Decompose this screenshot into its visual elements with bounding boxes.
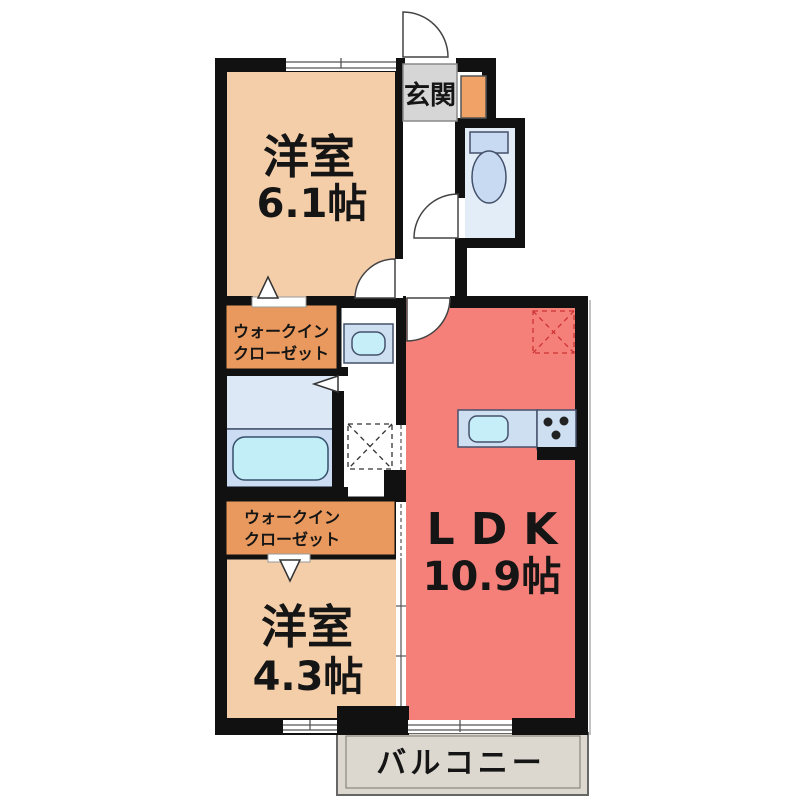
bedroom-bottom-ldk-sliding-door <box>396 502 406 706</box>
bedroom-top-area: 6.1帖 <box>257 181 368 227</box>
washroom-ldk-sliding-door <box>396 425 406 470</box>
closet-bottom-label-line1: ウォークイン <box>244 508 340 527</box>
toilet-icon <box>470 132 508 203</box>
bedroom-top-name: 洋室 <box>263 130 355 184</box>
balcony-label: バルコニー <box>376 746 545 781</box>
bathtub-icon <box>233 437 328 480</box>
bedroom-bottom-area: 4.3帖 <box>253 654 364 700</box>
shoe-cabinet <box>461 76 486 118</box>
kitchen-counter-icon <box>458 410 576 449</box>
ldk-name: LDK <box>427 504 574 555</box>
vanity-sink-icon <box>344 324 393 363</box>
window-bedroom-bottom <box>283 720 337 733</box>
floorplan-drawing: 玄関 洋室 6.1帖 ウォークイン クローゼット ウォークイン クローゼット 洋… <box>0 0 800 800</box>
kitchen-end-wall <box>537 447 588 460</box>
washing-machine-space <box>348 424 392 469</box>
window-ldk-balcony <box>408 720 512 733</box>
bedroom-bottom-name: 洋室 <box>261 600 353 654</box>
ldk-area: 10.9帖 <box>423 554 562 600</box>
toilet-door-arc <box>414 194 458 238</box>
window-bedroom-top <box>286 58 396 71</box>
closet-top-label-line2: クローゼット <box>233 344 329 363</box>
bedroom-top-door-opening <box>395 259 403 298</box>
entrance-label: 玄関 <box>404 80 456 111</box>
closet-bottom-label-line2: クローゼット <box>244 530 340 549</box>
closet-top-label-line1: ウォークイン <box>233 322 329 341</box>
entrance-door-arc <box>403 12 448 57</box>
floorplan-canvas: 玄関 洋室 6.1帖 ウォークイン クローゼット ウォークイン クローゼット 洋… <box>0 0 800 800</box>
